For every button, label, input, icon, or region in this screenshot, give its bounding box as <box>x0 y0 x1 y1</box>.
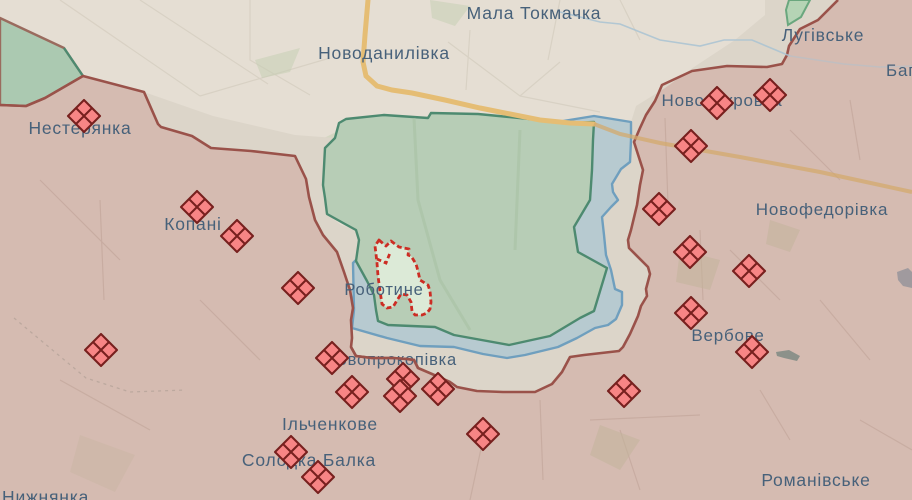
svg-text:Новофедорівка: Новофедорівка <box>756 200 888 219</box>
svg-text:Мала Токмачка: Мала Токмачка <box>467 3 602 23</box>
svg-text:Багате: Багате <box>886 61 912 80</box>
svg-text:Лугівське: Лугівське <box>782 25 864 45</box>
svg-text:Солодка Балка: Солодка Балка <box>242 450 376 470</box>
svg-text:Романівське: Романівське <box>761 470 870 490</box>
svg-text:Новоданилівка: Новоданилівка <box>318 43 450 63</box>
svg-text:Нижнянка: Нижнянка <box>2 487 89 500</box>
svg-text:Роботине: Роботине <box>344 281 423 299</box>
svg-text:Ільченкове: Ільченкове <box>282 414 378 434</box>
